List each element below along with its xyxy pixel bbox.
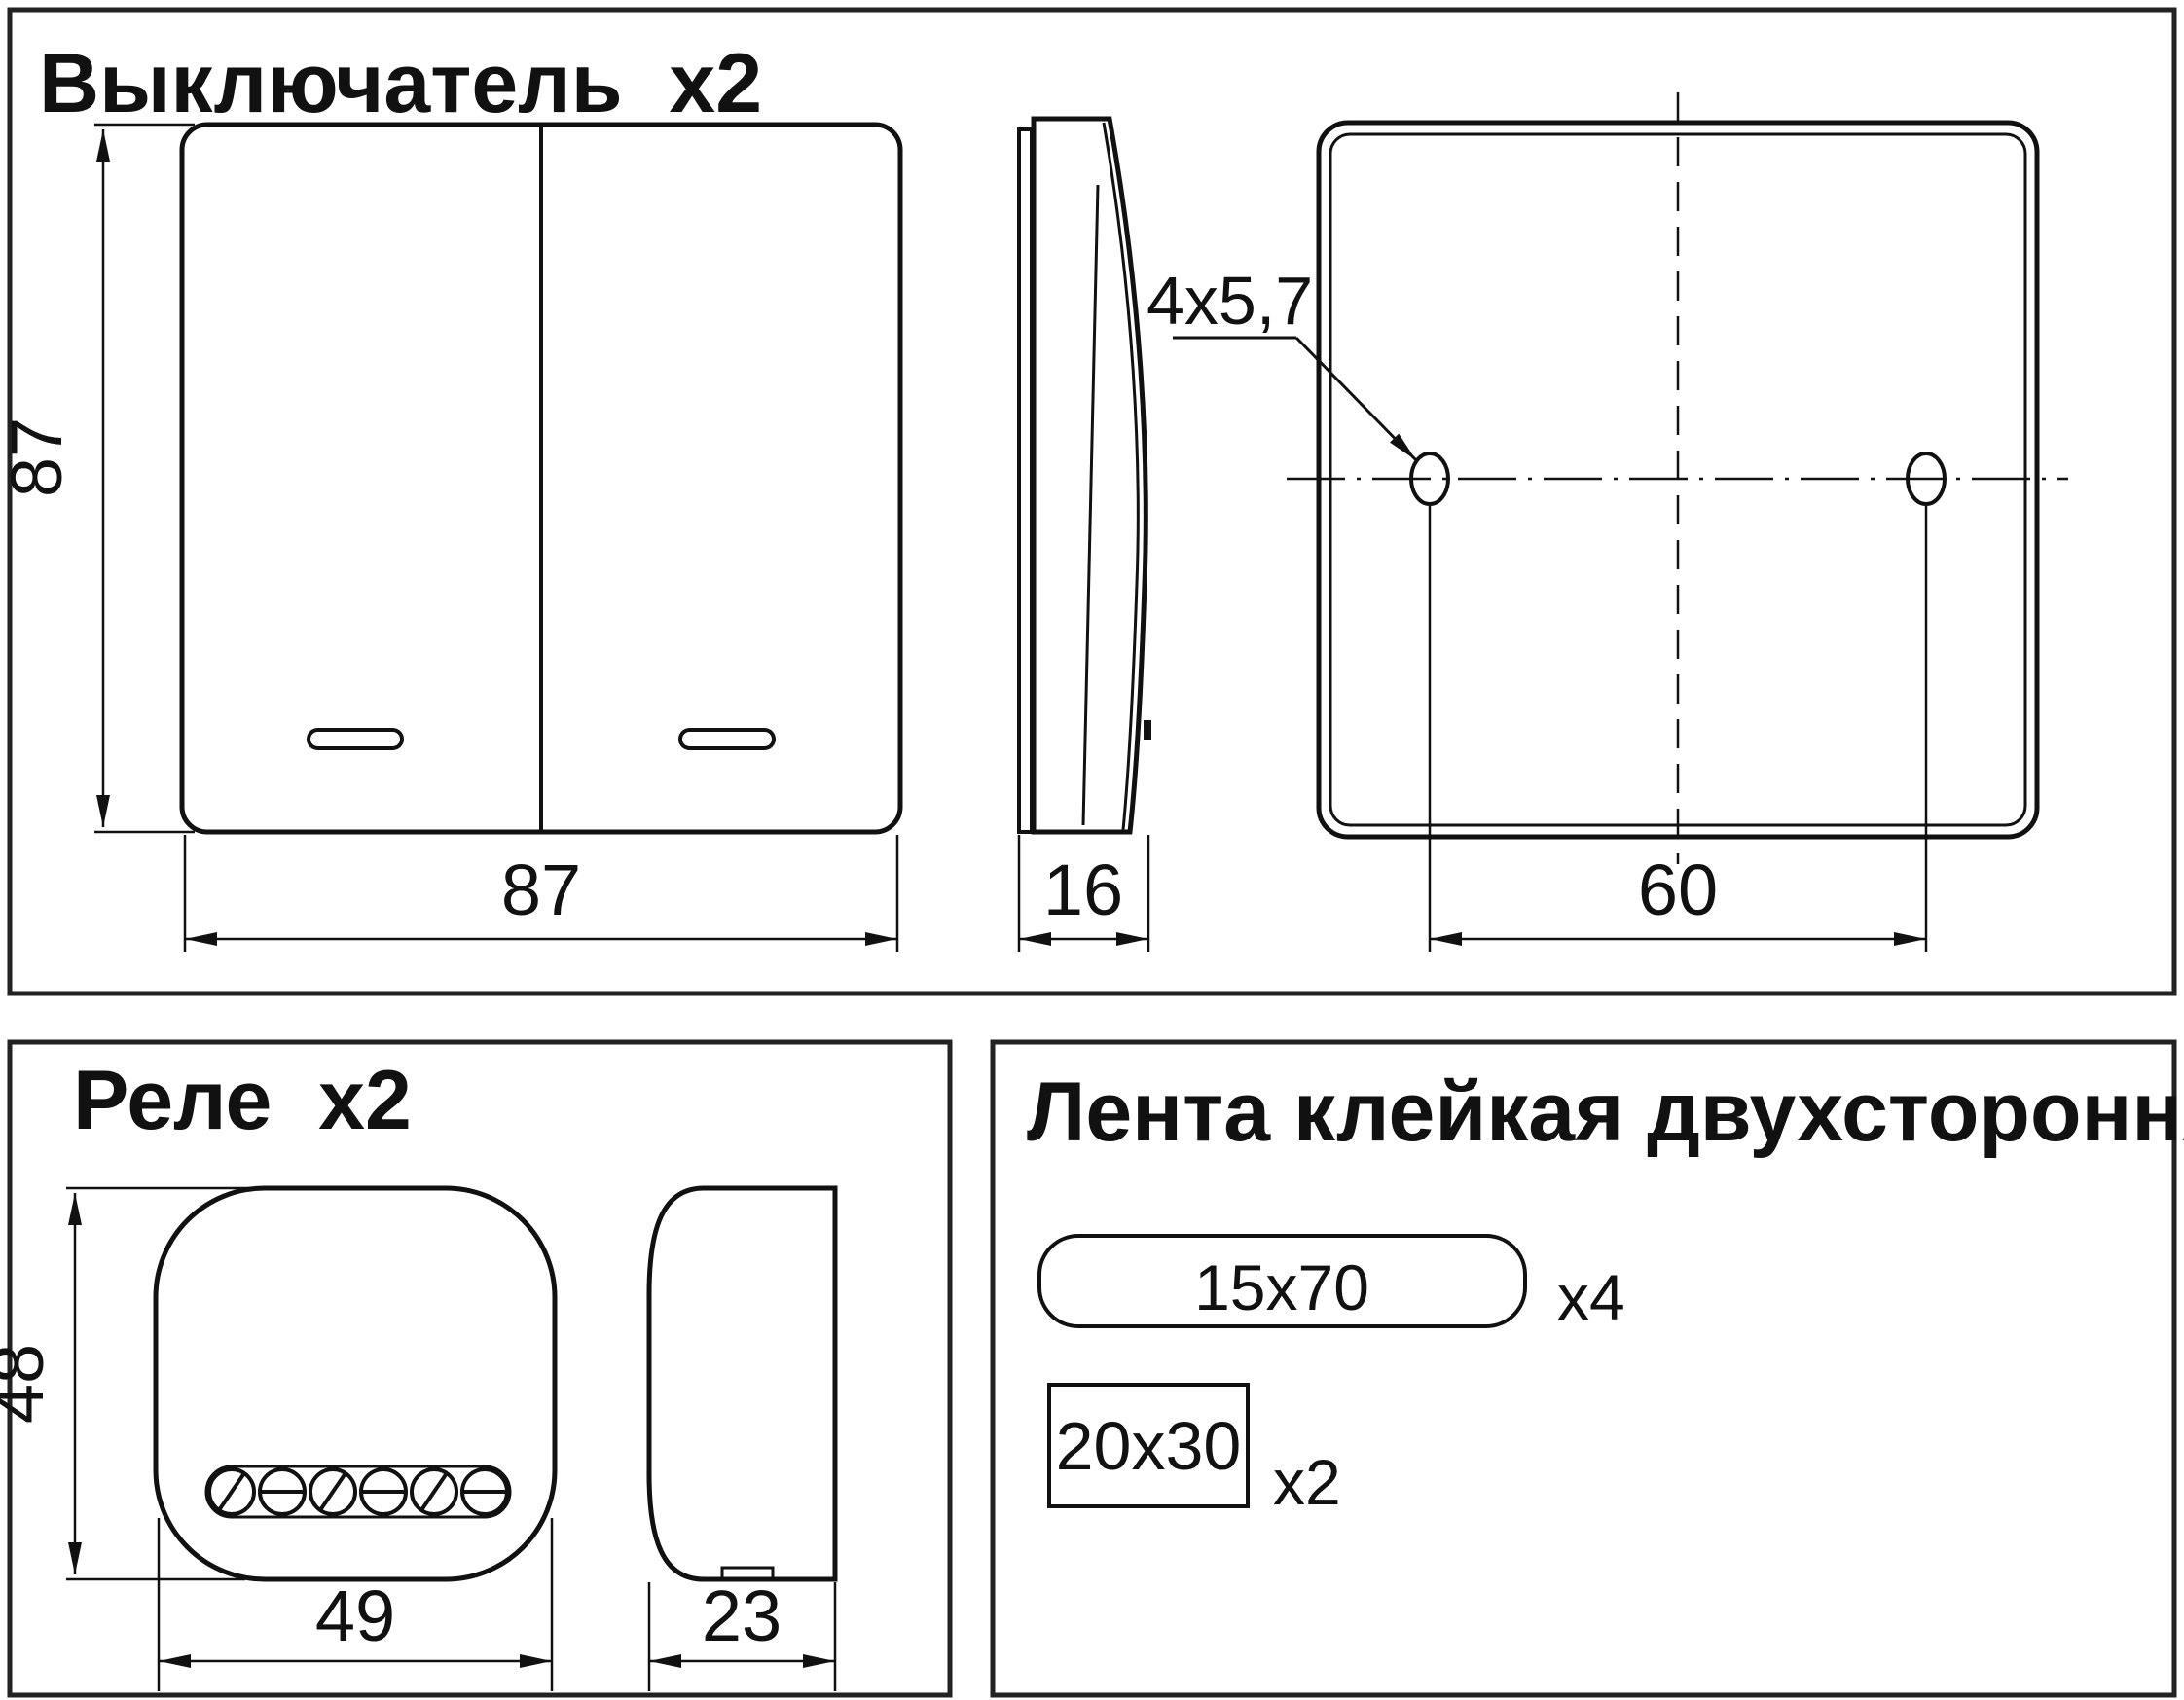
arrow-right-icon [520,1654,552,1668]
switch-indicator-slot-right [680,730,774,748]
arrow-down-icon [68,1542,82,1574]
tape-pad-qty-label: x2 [1273,1446,1341,1518]
arrow-left-icon [649,1654,681,1668]
holes-note-label: 4x5,7 [1147,263,1313,339]
switch-side-latch [1144,720,1151,740]
relay-width-label: 49 [315,1575,395,1656]
relay-side-view [649,1188,835,1579]
relay-side-outline [649,1188,835,1579]
switch-depth-label: 16 [1043,850,1123,930]
arrow-left-icon [185,932,217,946]
holes-callout: 4x5,7 [1147,263,1416,460]
drawing-page: Выключатель x2 87 87 [0,0,2184,1700]
switch-depth-dimension: 16 [1019,835,1148,952]
switch-back-view [1287,92,2068,864]
relay-depth-label: 23 [702,1575,782,1656]
tape-pad-size-label: 20x30 [1056,1408,1242,1484]
arrow-right-icon [865,932,897,946]
switch-side-rocker [1034,119,1146,832]
switch-side-inner-edge [1083,185,1098,825]
switch-front-view [182,125,900,832]
switch-height-label: 87 [0,417,77,497]
relay-terminal-screws [209,1469,507,1514]
tape-strip-qty-label: x4 [1557,1261,1625,1333]
relay-height-dimension: 48 [0,1188,251,1579]
switch-height-dimension: 87 [0,125,195,832]
switch-side-rocker-edge [1104,123,1138,830]
arrow-up-icon [96,129,110,162]
arrow-left-icon [1019,932,1051,946]
switch-width-dimension: 87 [185,835,897,952]
tape-pad-20x30: 20x30 x2 [1049,1385,1341,1518]
arrow-up-icon [68,1193,82,1225]
switch-panel: Выключатель x2 87 87 [0,37,2068,952]
arrow-left-icon [1430,932,1462,946]
relay-title: Реле x2 [73,1054,412,1147]
relay-depth-dimension: 23 [649,1575,835,1691]
arrow-right-icon [1894,932,1926,946]
switch-title: Выключатель x2 [39,37,762,130]
switch-side-backplate [1019,129,1032,832]
arrow-right-icon [803,1654,835,1668]
switch-indicator-slot-left [309,730,402,748]
tape-strip-size-label: 15x70 [1194,1251,1369,1323]
technical-drawing: Выключатель x2 87 87 [0,0,2184,1700]
relay-front-outline [156,1188,555,1579]
tape-title: Лента клейкая двухсторонняя [1027,1066,2184,1159]
relay-panel: Реле x2 [0,1054,835,1691]
switch-width-label: 87 [501,850,581,930]
tape-panel: Лента клейкая двухсторонняя 15x70 x4 20x… [1027,1066,2184,1518]
relay-front-view [156,1188,555,1579]
relay-width-dimension: 49 [159,1518,552,1691]
hole-spacing-label: 60 [1638,850,1718,930]
relay-height-label: 48 [0,1344,58,1424]
arrow-down-icon [96,795,110,827]
switch-side-view [1019,119,1151,832]
arrow-left-icon [159,1654,191,1668]
tape-strip-15x70: 15x70 x4 [1039,1236,1625,1333]
arrow-right-icon [1116,932,1148,946]
